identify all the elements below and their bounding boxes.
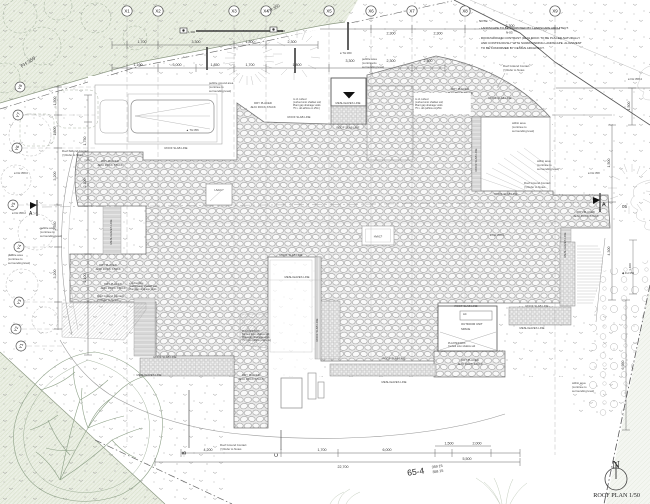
svg-text:● FH:358.6: ● FH:358.6 bbox=[490, 233, 504, 237]
svg-text:ROOF SLAB LINE: ROOF SLAB LINE bbox=[474, 148, 478, 171]
svg-text:6,950: 6,950 bbox=[621, 361, 625, 370]
svg-text:(!) Refer to Notes: (!) Refer to Notes bbox=[524, 185, 546, 189]
svg-text:- ROOF/GROUND CONTRAST (JEJU R: - ROOF/GROUND CONTRAST (JEJU ROCK TO BE … bbox=[479, 36, 580, 40]
svg-text:MESH EAVES LINE: MESH EAVES LINE bbox=[285, 275, 310, 279]
svg-text:2,300: 2,300 bbox=[434, 32, 443, 36]
svg-text:▲ TH:356: ▲ TH:356 bbox=[186, 128, 199, 132]
svg-text:6,000: 6,000 bbox=[383, 448, 392, 452]
svg-text:1,850: 1,850 bbox=[211, 63, 220, 67]
svg-text:2,100: 2,100 bbox=[83, 274, 87, 283]
svg-text:2,300: 2,300 bbox=[288, 40, 297, 44]
svg-text:MESH EAVES LINE: MESH EAVES LINE bbox=[336, 101, 361, 105]
svg-text:surrounding level): surrounding level) bbox=[40, 234, 62, 238]
svg-text:ROOF SLAB LINE: ROOF SLAB LINE bbox=[382, 357, 405, 361]
svg-text:2,000: 2,000 bbox=[473, 442, 482, 446]
svg-text:A: A bbox=[602, 202, 606, 208]
svg-text:OUTDOOR UNIT: OUTDOOR UNIT bbox=[461, 322, 483, 326]
svg-text:3,200: 3,200 bbox=[53, 172, 57, 181]
svg-text:JEJU ROCK STACK: JEJU ROCK STACK bbox=[238, 377, 264, 381]
svg-text:3,300: 3,300 bbox=[346, 59, 355, 63]
svg-text:● FH:358: ● FH:358 bbox=[588, 171, 600, 175]
svg-text:● FH:358.0: ● FH:358.0 bbox=[14, 171, 28, 175]
svg-text:2,100: 2,100 bbox=[83, 179, 87, 188]
svg-text:ROOF SLAB LINE: ROOF SLAB LINE bbox=[488, 96, 511, 100]
svg-text:ROOF SLAB LINE: ROOF SLAB LINE bbox=[525, 304, 548, 308]
svg-text:1,500: 1,500 bbox=[607, 159, 611, 168]
svg-text:75 x .dd (airflow pressure): 75 x .dd (airflow pressure) bbox=[242, 339, 271, 342]
svg-text:ROOF SLAB LINE: ROOF SLAB LINE bbox=[336, 126, 359, 130]
svg-text:1,700: 1,700 bbox=[318, 448, 327, 452]
svg-text:X6: X6 bbox=[368, 9, 374, 14]
svg-text:MESH EAVES LINE: MESH EAVES LINE bbox=[382, 380, 407, 384]
svg-text:ROOF PLAN 1/50: ROOF PLAN 1/50 bbox=[593, 492, 640, 499]
svg-text:(!) Refer to Notes: (!) Refer to Notes bbox=[97, 298, 119, 302]
svg-text:4,200: 4,200 bbox=[204, 448, 213, 452]
svg-text:SPACE: SPACE bbox=[461, 327, 470, 331]
svg-text:(!) Refer to Notes: (!) Refer to Notes bbox=[220, 447, 242, 451]
svg-text:C: C bbox=[274, 453, 280, 457]
svg-text:ROOF SLAB LINE: ROOF SLAB LINE bbox=[153, 355, 176, 359]
svg-text:1,500: 1,500 bbox=[445, 442, 454, 446]
svg-text:2,300: 2,300 bbox=[278, 29, 285, 33]
svg-text:05: 05 bbox=[622, 204, 628, 209]
svg-text:1,500: 1,500 bbox=[627, 102, 631, 111]
svg-text:1,800: 1,800 bbox=[53, 127, 57, 136]
svg-text:● FH:358.2: ● FH:358.2 bbox=[12, 211, 26, 215]
svg-text:surrounding level): surrounding level) bbox=[512, 129, 534, 133]
svg-text:- LANDSCAPE TO BE PROPOSED BY: - LANDSCAPE TO BE PROPOSED BY LANDSCAPE … bbox=[479, 26, 569, 30]
svg-text:75 x .dd (airflow on)25m: 75 x .dd (airflow on)25m bbox=[415, 107, 442, 110]
svg-text:1,750: 1,750 bbox=[83, 137, 87, 146]
svg-text:1,700: 1,700 bbox=[246, 63, 255, 67]
svg-text:X7: X7 bbox=[409, 9, 415, 14]
svg-text:2,300: 2,300 bbox=[387, 59, 396, 63]
svg-text:● TH:360: ● TH:360 bbox=[340, 51, 352, 55]
svg-text:1,800: 1,800 bbox=[293, 63, 302, 67]
svg-text:HVAC?: HVAC? bbox=[214, 188, 224, 192]
svg-text:3,300: 3,300 bbox=[192, 40, 201, 44]
svg-text:ROOF SLAB LINE: ROOF SLAB LINE bbox=[315, 318, 319, 341]
svg-text:X5: X5 bbox=[326, 9, 332, 14]
svg-text:◆ FH:359: ◆ FH:359 bbox=[622, 271, 635, 275]
svg-text:ROOF SLAB LINE: ROOF SLAB LINE bbox=[164, 146, 187, 150]
svg-text:MESH EAVES LINE: MESH EAVES LINE bbox=[520, 326, 545, 330]
svg-text:surrounding level): surrounding level) bbox=[8, 261, 30, 265]
svg-text:1,400: 1,400 bbox=[628, 263, 632, 271]
svg-text:ROOF SLAB LINE: ROOF SLAB LINE bbox=[287, 115, 310, 119]
svg-text:MESH EAVES LINE: MESH EAVES LINE bbox=[137, 373, 162, 377]
svg-text:● FH:358.4: ● FH:358.4 bbox=[628, 77, 642, 81]
svg-text:(!) Refer to Notes: (!) Refer to Notes bbox=[62, 153, 84, 157]
svg-text:ROOF SLAB LINE: ROOF SLAB LINE bbox=[279, 253, 302, 257]
svg-text:JEJU ROCK STACK: JEJU ROCK STACK bbox=[95, 267, 121, 271]
svg-text:2,300: 2,300 bbox=[387, 32, 396, 36]
svg-text:(!) Refer to Notes: (!) Refer to Notes bbox=[503, 68, 525, 72]
svg-text:4,300: 4,300 bbox=[607, 247, 611, 256]
svg-text:AC: AC bbox=[463, 312, 467, 316]
svg-text:3,000: 3,000 bbox=[173, 63, 182, 67]
svg-text:MESH EAVES LINE: MESH EAVES LINE bbox=[109, 219, 113, 244]
svg-text:5,500: 5,500 bbox=[463, 457, 472, 461]
svg-text:TO BE CONFIRMED BY DESIGN ARCH: TO BE CONFIRMED BY DESIGN ARCHITECT. bbox=[481, 46, 545, 50]
svg-text:1,700: 1,700 bbox=[138, 40, 147, 44]
svg-text:22,700: 22,700 bbox=[338, 465, 349, 469]
svg-text:X2: X2 bbox=[155, 9, 161, 14]
svg-text:ROOF SLAB LINE: ROOF SLAB LINE bbox=[494, 192, 517, 196]
svg-text:AND CONTINUOUSLY WITH SURROUND: AND CONTINUOUSLY WITH SURROUNDING LANDSC… bbox=[481, 41, 582, 45]
svg-text:JEJU ROCK STACK: JEJU ROCK STACK bbox=[573, 214, 599, 218]
svg-text:1,300: 1,300 bbox=[188, 30, 195, 34]
svg-text:surrounding level): surrounding level) bbox=[362, 65, 384, 69]
svg-text:X3: X3 bbox=[231, 9, 237, 14]
svg-text:X1: X1 bbox=[124, 9, 130, 14]
svg-text:X8: X8 bbox=[462, 9, 468, 14]
svg-text:1,100: 1,100 bbox=[134, 63, 143, 67]
svg-text:JEJU ROCK STACK: JEJU ROCK STACK bbox=[457, 362, 483, 366]
svg-text:surrounding level): surrounding level) bbox=[537, 167, 559, 171]
svg-text:2,300: 2,300 bbox=[424, 59, 433, 63]
svg-text:surrounding level): surrounding level) bbox=[209, 89, 231, 93]
svg-text:HVAC?: HVAC? bbox=[374, 235, 383, 239]
svg-text:surrounding level): surrounding level) bbox=[572, 389, 594, 393]
svg-text:JEJU ROCK STACK: JEJU ROCK STACK bbox=[250, 105, 276, 109]
svg-text:ROOF SLAB LINE: ROOF SLAB LINE bbox=[454, 304, 477, 308]
svg-text:Curbed onto shallow soil: Curbed onto shallow soil bbox=[448, 345, 476, 348]
svg-text:Plant gap drainage voids: Plant gap drainage voids bbox=[129, 288, 157, 291]
svg-text:75 x .dd airflow on 25m): 75 x .dd airflow on 25m) bbox=[293, 107, 320, 110]
svg-text:1,500: 1,500 bbox=[53, 97, 57, 106]
svg-text:3,200: 3,200 bbox=[53, 270, 57, 279]
svg-text:1,800: 1,800 bbox=[246, 40, 255, 44]
svg-text:JEJU ROCK STACK: JEJU ROCK STACK bbox=[97, 163, 123, 167]
svg-text:X9: X9 bbox=[552, 9, 558, 14]
svg-text:MESH EAVES LINE: MESH EAVES LINE bbox=[563, 232, 567, 257]
svg-text:JEJU ROCK STACK: JEJU ROCK STACK bbox=[100, 286, 126, 290]
svg-text:NOTE:: NOTE: bbox=[479, 19, 488, 23]
svg-text:N-03: N-03 bbox=[506, 31, 513, 35]
